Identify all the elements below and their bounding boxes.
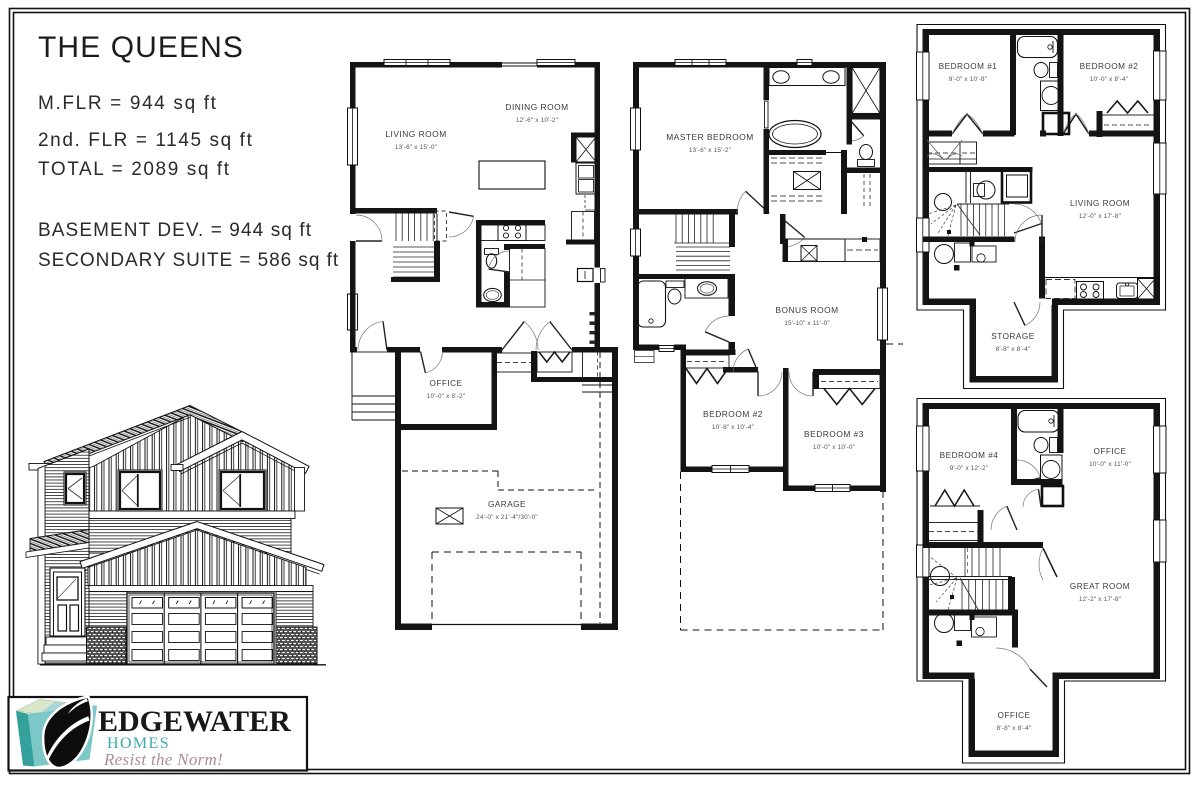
svg-text:OFFICE: OFFICE (997, 711, 1030, 720)
svg-text:EDGEWATER: EDGEWATER (98, 705, 291, 738)
svg-text:SECONDARY SUITE = 586 sq ft: SECONDARY SUITE = 586 sq ft (38, 250, 339, 271)
svg-text:BASEMENT DEV. = 944 sq ft: BASEMENT DEV. = 944 sq ft (38, 220, 312, 241)
svg-text:MASTER BEDROOM: MASTER BEDROOM (666, 132, 754, 142)
svg-text:9'-0" x 12'-2": 9'-0" x 12'-2" (950, 465, 989, 472)
svg-text:LIVING ROOM: LIVING ROOM (1070, 199, 1130, 208)
svg-text:12'-0" x 17'-8": 12'-0" x 17'-8" (1079, 213, 1121, 220)
svg-text:BEDROOM #3: BEDROOM #3 (804, 429, 864, 439)
svg-text:8'-8" x 8'-4": 8'-8" x 8'-4" (996, 346, 1031, 353)
svg-text:THE QUEENS: THE QUEENS (38, 31, 244, 64)
svg-text:Resist the Norm!: Resist the Norm! (103, 750, 223, 769)
svg-text:M.FLR = 944 sq ft: M.FLR = 944 sq ft (38, 93, 218, 114)
svg-text:12'-2" x 17'-8": 12'-2" x 17'-8" (1079, 596, 1121, 603)
svg-text:TOTAL = 2089 sq ft: TOTAL = 2089 sq ft (38, 159, 231, 180)
svg-text:10'-0" x 11'-0": 10'-0" x 11'-0" (1089, 461, 1131, 468)
svg-text:LIVING ROOM: LIVING ROOM (385, 129, 446, 139)
svg-text:GARAGE: GARAGE (488, 500, 526, 509)
svg-text:BEDROOM #1: BEDROOM #1 (939, 62, 998, 71)
svg-text:BONUS ROOM: BONUS ROOM (775, 305, 838, 315)
svg-text:9'-0" x 10'-8": 9'-0" x 10'-8" (949, 76, 988, 83)
svg-text:24'-0" x 21'-4"/30'-0": 24'-0" x 21'-4"/30'-0" (476, 514, 538, 521)
svg-text:10'-0" x 8'-2": 10'-0" x 8'-2" (427, 393, 466, 400)
svg-text:10'-8" x 10'-4": 10'-8" x 10'-4" (712, 424, 754, 431)
svg-text:OFFICE: OFFICE (429, 379, 462, 388)
svg-text:15'-10" x 11'-0": 15'-10" x 11'-0" (784, 320, 830, 327)
svg-text:13'-6" x 15'-2": 13'-6" x 15'-2" (689, 147, 731, 154)
svg-text:2nd. FLR = 1145 sq ft: 2nd. FLR = 1145 sq ft (38, 130, 253, 151)
svg-text:STORAGE: STORAGE (991, 332, 1034, 341)
svg-text:10'-0" x 8'-4": 10'-0" x 8'-4" (1090, 76, 1129, 83)
svg-text:BEDROOM #4: BEDROOM #4 (940, 451, 999, 460)
svg-text:BEDROOM #2: BEDROOM #2 (1080, 62, 1139, 71)
svg-text:13'-6" x 15'-0": 13'-6" x 15'-0" (395, 144, 437, 151)
svg-text:10'-0" x 10'-0": 10'-0" x 10'-0" (813, 444, 855, 451)
svg-text:DINING ROOM: DINING ROOM (505, 102, 568, 112)
svg-text:8'-8" x 8'-4": 8'-8" x 8'-4" (997, 725, 1032, 732)
svg-text:12'-6" x 10'-2": 12'-6" x 10'-2" (516, 117, 558, 124)
svg-text:BEDROOM #2: BEDROOM #2 (703, 409, 763, 419)
svg-text:GREAT ROOM: GREAT ROOM (1070, 582, 1130, 591)
svg-text:OFFICE: OFFICE (1093, 447, 1126, 456)
